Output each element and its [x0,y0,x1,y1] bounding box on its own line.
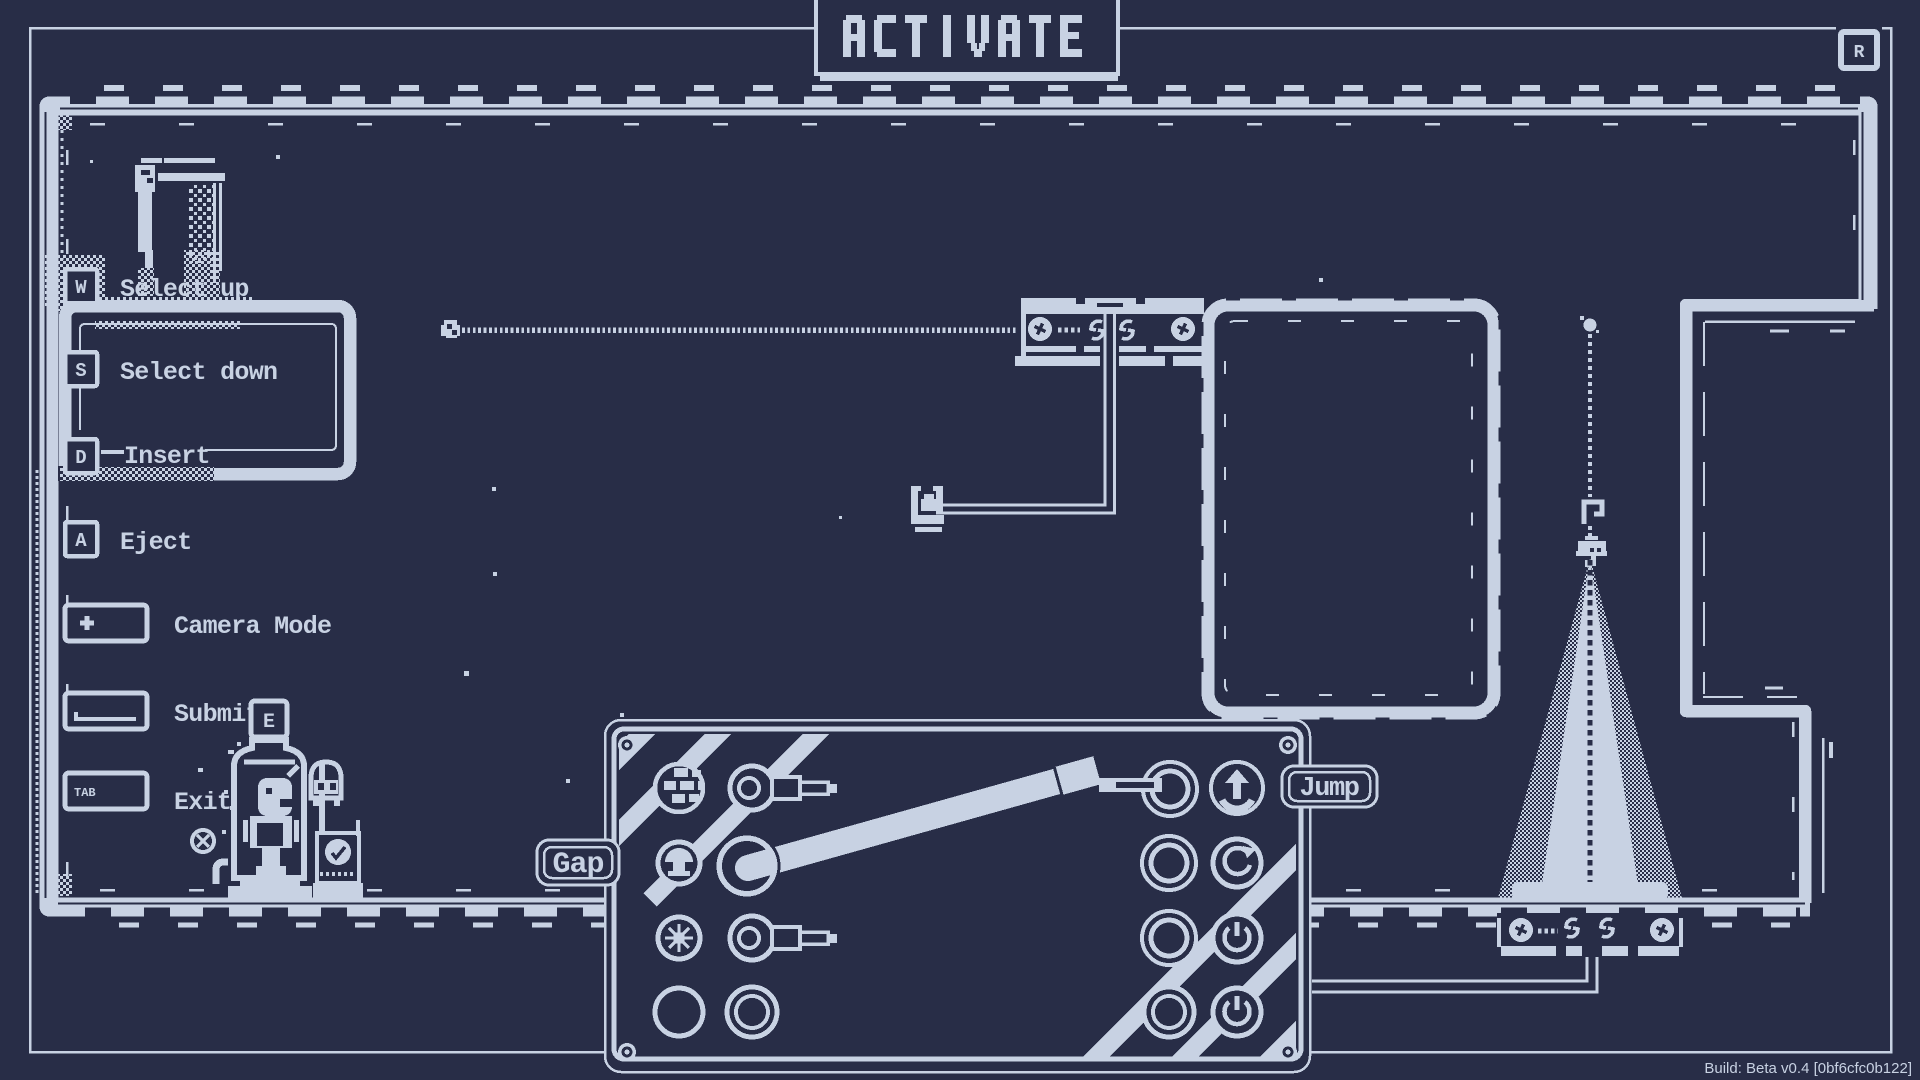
svg-text:Select down: Select down [120,358,277,387]
svg-text:Camera Mode: Camera Mode [174,612,331,641]
svg-text:Gap: Gap [552,848,603,882]
svg-text:W: W [75,277,87,299]
svg-text:Insert: Insert [124,442,210,471]
svg-text:Select up: Select up [120,275,249,304]
svg-text:Build: Beta v0.4 [0bf6cfc0b122: Build: Beta v0.4 [0bf6cfc0b122] [1704,1060,1912,1077]
svg-text:R: R [1854,43,1865,63]
svg-text:Submit: Submit [174,700,260,729]
svg-text:Jump: Jump [1299,774,1358,804]
svg-text:E: E [263,711,275,734]
svg-text:Eject: Eject [120,528,192,557]
svg-text:Exit: Exit [174,788,231,817]
svg-text:A: A [75,530,87,552]
svg-text:S: S [75,360,86,382]
svg-text:D: D [75,447,86,469]
svg-text:TAB: TAB [74,786,96,800]
